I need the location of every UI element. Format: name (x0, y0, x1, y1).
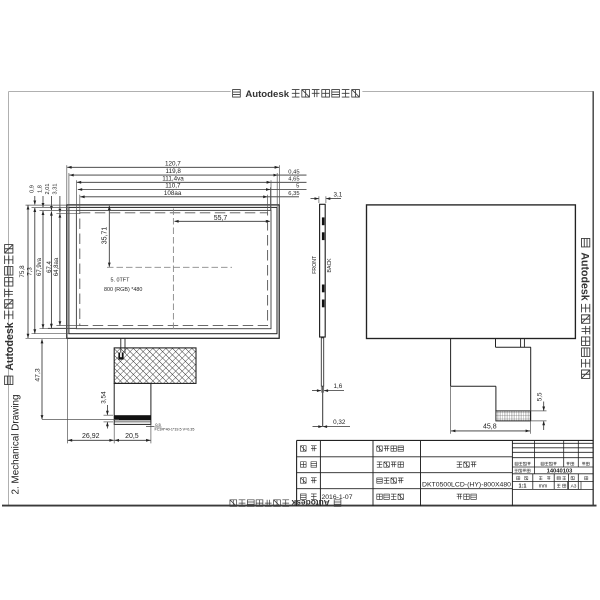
svg-text:120,7: 120,7 (165, 160, 181, 167)
svg-text:20,5: 20,5 (125, 433, 139, 440)
svg-text:0,45: 0,45 (288, 169, 299, 175)
svg-text:Autodesk: Autodesk (4, 322, 16, 370)
svg-text:5,5: 5,5 (536, 392, 543, 401)
svg-text:0,5: 0,5 (155, 422, 161, 427)
svg-text:64,8aa: 64,8aa (54, 257, 60, 276)
svg-text:1,8: 1,8 (37, 185, 43, 193)
svg-text:Autodesk: Autodesk (579, 252, 591, 300)
svg-text:7,3: 7,3 (27, 267, 33, 276)
svg-text:110,7: 110,7 (165, 183, 181, 190)
svg-text:55,7: 55,7 (214, 215, 228, 222)
svg-text:4,65: 4,65 (288, 177, 299, 183)
svg-text:111,4va: 111,4va (162, 175, 184, 182)
svg-text:FRONT: FRONT (312, 255, 318, 274)
svg-text:119,8: 119,8 (166, 168, 182, 175)
svg-text:800 (RGB) *480: 800 (RGB) *480 (104, 287, 142, 293)
svg-text:1,6: 1,6 (334, 383, 343, 390)
svg-text:0,32: 0,32 (333, 419, 346, 426)
svg-text:5. 0TFT: 5. 0TFT (111, 277, 131, 283)
svg-text:Autodesk: Autodesk (245, 89, 289, 100)
svg-text:0,9: 0,9 (30, 185, 36, 193)
svg-text:35,71: 35,71 (101, 227, 108, 245)
svg-text:2,01: 2,01 (45, 184, 51, 195)
svg-text:26,92: 26,92 (82, 433, 100, 440)
svg-text:45,8: 45,8 (483, 424, 497, 431)
svg-text:A3: A3 (571, 484, 577, 490)
svg-text:BACK: BACK (327, 258, 333, 273)
svg-text:2. Mechanical Drawing: 2. Mechanical Drawing (9, 394, 21, 494)
svg-text:6,35: 6,35 (288, 191, 299, 197)
svg-text:FC3R*40-1*19.5 V=0.35: FC3R*40-1*19.5 V=0.35 (155, 427, 195, 431)
svg-text:67,4: 67,4 (47, 261, 53, 273)
svg-text:3,31: 3,31 (53, 184, 59, 195)
svg-text:75,8: 75,8 (19, 265, 26, 278)
svg-text:3,1: 3,1 (334, 191, 343, 198)
svg-text:mm: mm (539, 484, 548, 490)
svg-text:3,54: 3,54 (100, 391, 107, 404)
svg-text:67,9va: 67,9va (37, 257, 43, 276)
svg-text:108aa: 108aa (164, 190, 182, 197)
svg-text:5: 5 (296, 184, 299, 190)
svg-text:DKT0500LCD-(HY)-800X480: DKT0500LCD-(HY)-800X480 (422, 481, 511, 488)
svg-text:2016-1-07: 2016-1-07 (322, 494, 353, 501)
svg-text:1:1: 1:1 (518, 484, 526, 490)
svg-text:14040103: 14040103 (547, 469, 574, 475)
svg-text:47,3: 47,3 (34, 368, 41, 381)
